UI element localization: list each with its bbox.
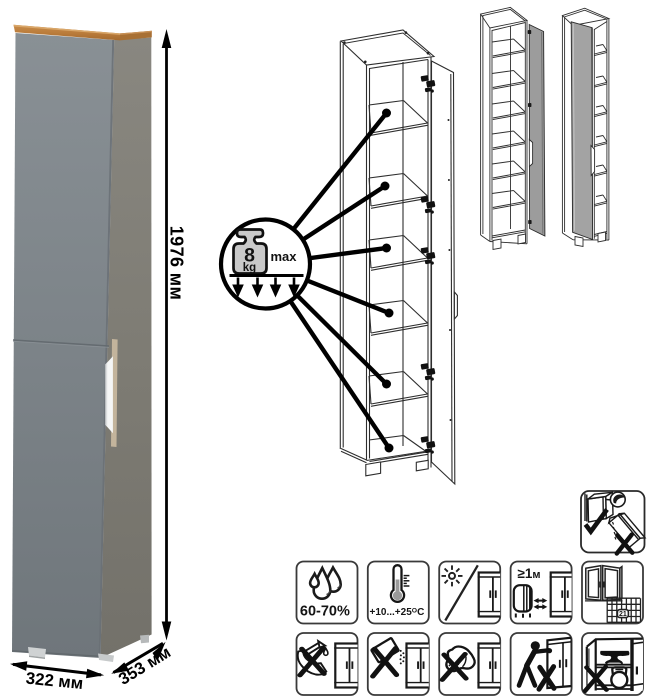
svg-text:60-70%: 60-70% xyxy=(300,603,350,619)
svg-text:kg: kg xyxy=(243,262,256,274)
svg-text:1976 мм: 1976 мм xyxy=(167,226,187,300)
svg-text:max: max xyxy=(270,249,297,264)
svg-text:≥1м: ≥1м xyxy=(518,566,541,581)
svg-text:21: 21 xyxy=(619,611,627,618)
